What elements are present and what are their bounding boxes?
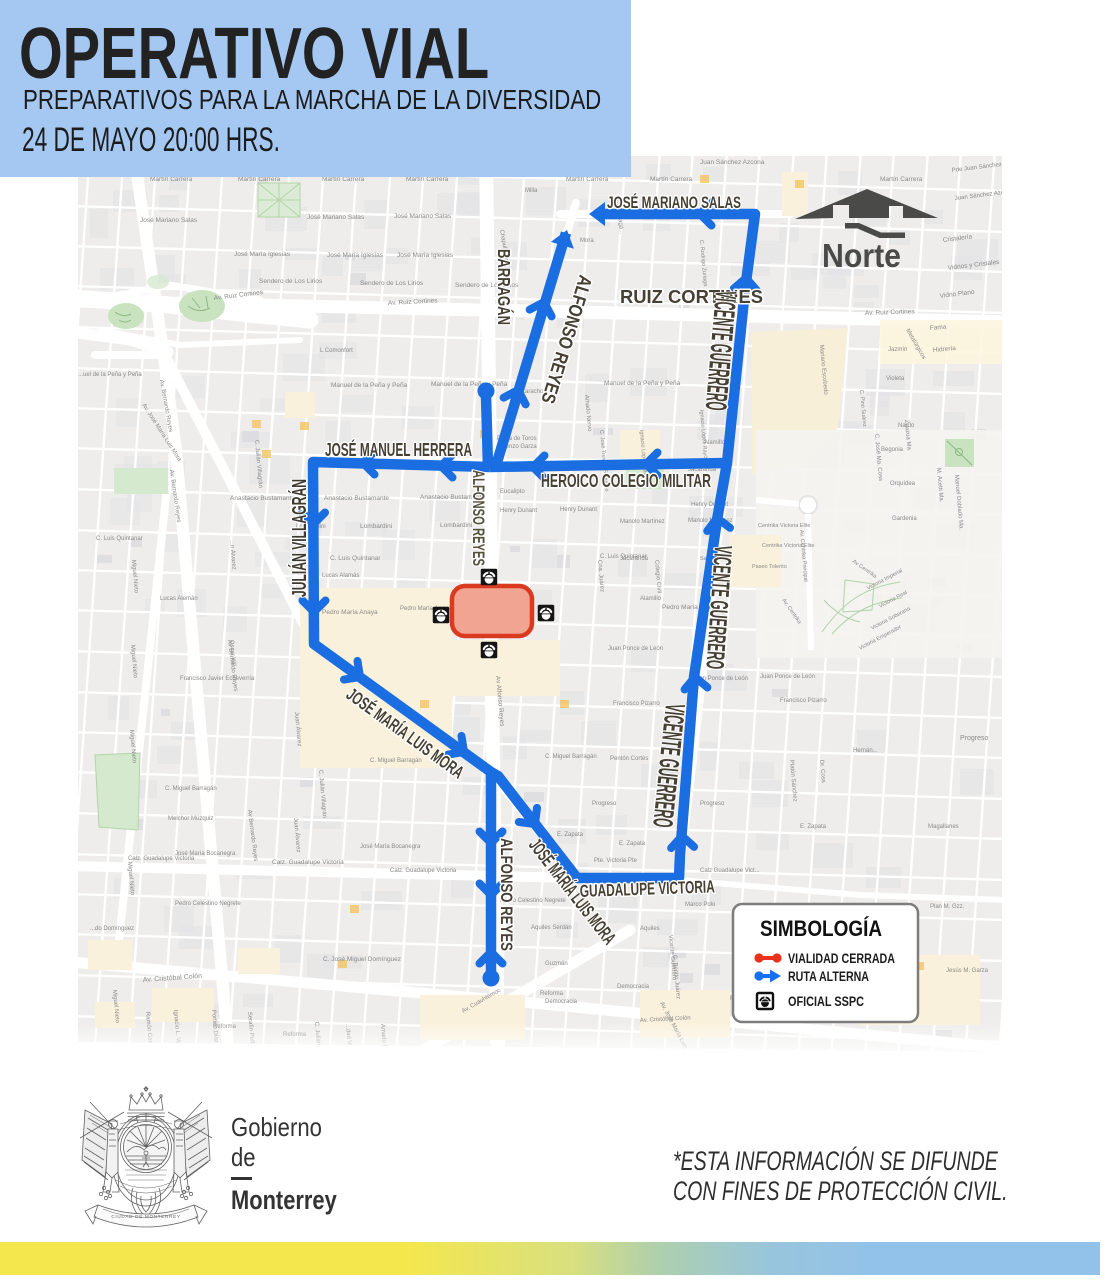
svg-text:C. Luis Quintanar: C. Luis Quintanar bbox=[330, 555, 381, 562]
svg-text:José María Bocanegra: José María Bocanegra bbox=[360, 844, 421, 850]
svg-text:Jazmín: Jazmín bbox=[888, 347, 907, 353]
svg-text:Orquídea: Orquídea bbox=[890, 481, 916, 487]
svg-text:Progreso: Progreso bbox=[592, 801, 617, 807]
svg-text:José Mariano Salas: José Mariano Salas bbox=[140, 217, 198, 224]
svg-text:Lombardini: Lombardini bbox=[360, 523, 392, 530]
svg-text:E. Zapata: E. Zapata bbox=[619, 841, 646, 847]
svg-text:Marco Polo: Marco Polo bbox=[685, 902, 716, 908]
svg-text:Martín Carrera: Martín Carrera bbox=[566, 176, 609, 183]
svg-text:Aquiles: Aquiles bbox=[640, 926, 660, 932]
svg-text:Plan M. Gzz.: Plan M. Gzz. bbox=[930, 904, 965, 910]
svg-text:Reforma: Reforma bbox=[540, 991, 564, 997]
svg-text:OFICIAL SSPC: OFICIAL SSPC bbox=[788, 994, 864, 1009]
svg-text:E. Zapata: E. Zapata bbox=[557, 832, 584, 838]
svg-text:Martín Carrera: Martín Carrera bbox=[150, 176, 193, 183]
svg-text:Juan Sánchez Azcona: Juan Sánchez Azcona bbox=[700, 159, 765, 166]
svg-text:Juan Ponce de León: Juan Ponce de León bbox=[760, 674, 815, 680]
svg-text:José María Iglesias: José María Iglesias bbox=[234, 251, 291, 258]
svg-text:Juan Ponce de León: Juan Ponce de León bbox=[608, 646, 663, 652]
svg-text:HEROICO COLEGIO MILITAR: HEROICO COLEGIO MILITAR bbox=[541, 471, 711, 491]
svg-text:Calz Guadalupe Vict...: Calz Guadalupe Vict... bbox=[700, 868, 760, 874]
svg-text:Anastacio Bustamante: Anastacio Bustamante bbox=[324, 495, 389, 502]
svg-text:JULIÁN VILLAGRÁN: JULIÁN VILLAGRÁN bbox=[288, 479, 311, 597]
svg-text:Progreso: Progreso bbox=[700, 801, 725, 807]
svg-text:Pedro Celestino Negrete: Pedro Celestino Negrete bbox=[175, 901, 241, 907]
svg-text:Paseo Tolento: Paseo Tolento bbox=[752, 564, 787, 570]
svg-text:C. Luis Quintanar: C. Luis Quintanar bbox=[96, 536, 143, 542]
svg-text:Nardo: Nardo bbox=[898, 423, 915, 429]
svg-text:Manuel de la Peña y Peña: Manuel de la Peña y Peña bbox=[331, 382, 408, 389]
svg-text:José Mariano Salas: José Mariano Salas bbox=[307, 214, 365, 221]
svg-text:RUTA ALTERNA: RUTA ALTERNA bbox=[788, 969, 869, 984]
svg-text:Francisco Javier Echeverría: Francisco Javier Echeverría bbox=[180, 676, 255, 682]
svg-text:Martín Carrera: Martín Carrera bbox=[238, 176, 281, 183]
svg-text:Centrika Victoria Elite: Centrika Victoria Elite bbox=[758, 523, 810, 529]
svg-text:Sendero de Los Lirios: Sendero de Los Lirios bbox=[360, 280, 424, 287]
svg-text:Fama: Fama bbox=[930, 324, 948, 332]
svg-text:Mora: Mora bbox=[580, 238, 594, 244]
svg-text:JOSÉ MARIANO SALAS: JOSÉ MARIANO SALAS bbox=[607, 193, 741, 212]
svg-text:Aquiles Serdán: Aquiles Serdán bbox=[531, 925, 572, 931]
svg-text:Jacarandá: Jacarandá bbox=[620, 556, 649, 562]
svg-text:Pedro María Anaya: Pedro María Anaya bbox=[322, 609, 378, 616]
svg-text:ALFONSO REYES: ALFONSO REYES bbox=[497, 838, 516, 951]
svg-text:L Comonfort: L Comonfort bbox=[320, 348, 353, 354]
svg-text:José María Iglesias: José María Iglesias bbox=[397, 252, 454, 259]
svg-text:Anastacio Bustamante: Anastacio Bustamante bbox=[230, 495, 295, 502]
svg-text:Centrika Victoria Elite: Centrika Victoria Elite bbox=[762, 543, 814, 549]
svg-text:Henry Dunant: Henry Dunant bbox=[560, 507, 597, 513]
svg-text:Begonia: Begonia bbox=[881, 447, 904, 453]
svg-text:Jesús M. Garza: Jesús M. Garza bbox=[946, 968, 989, 974]
svg-text:Martín Carrera: Martín Carrera bbox=[880, 176, 923, 183]
svg-text:Martín Carrera: Martín Carrera bbox=[650, 176, 693, 183]
svg-text:Hernán...: Hernán... bbox=[853, 748, 878, 754]
svg-text:Francisco Pizarro: Francisco Pizarro bbox=[780, 698, 827, 704]
svg-text:C. Miguel Barragán: C. Miguel Barragán bbox=[370, 758, 422, 764]
svg-text:Alamillo: Alamillo bbox=[640, 596, 662, 602]
svg-text:JOSÉ MANUEL HERRERA: JOSÉ MANUEL HERRERA bbox=[325, 439, 472, 460]
svg-text:Magallanes: Magallanes bbox=[928, 824, 959, 830]
svg-text:José Mariano Salas: José Mariano Salas bbox=[394, 213, 452, 220]
svg-text:Guzmán: Guzmán bbox=[545, 961, 568, 967]
svg-text:Manuel de la Peña y Peña: Manuel de la Peña y Peña bbox=[604, 380, 681, 387]
svg-text:José María Iglesias: José María Iglesias bbox=[327, 252, 384, 259]
svg-text:Norte: Norte bbox=[822, 237, 901, 274]
svg-text:Eucalipto: Eucalipto bbox=[500, 489, 525, 495]
svg-text:Progreso: Progreso bbox=[960, 735, 989, 742]
svg-text:CIUDAD DE MONTERREY: CIUDAD DE MONTERREY bbox=[111, 1214, 180, 1219]
svg-text:Manolo Martínez: Manolo Martínez bbox=[620, 519, 665, 525]
svg-text:Calz. Guadalupe Victoria: Calz. Guadalupe Victoria bbox=[390, 868, 457, 874]
svg-text:Lucas Alamás: Lucas Alamás bbox=[322, 573, 359, 579]
svg-text:Calz. Guadalupe Victoria: Calz. Guadalupe Victoria bbox=[128, 856, 195, 862]
svg-text:E. Zapata: E. Zapata bbox=[800, 824, 827, 830]
svg-text:C. José Miguel Domínguez: C. José Miguel Domínguez bbox=[323, 956, 401, 963]
svg-text:Democracia: Democracia bbox=[617, 984, 650, 990]
svg-text:Martín Carrera: Martín Carrera bbox=[406, 176, 449, 183]
svg-text:Sendero de Los Lirios: Sendero de Los Lirios bbox=[259, 278, 323, 285]
svg-text:Henry Dunant: Henry Dunant bbox=[500, 508, 537, 514]
svg-text:Gardenia: Gardenia bbox=[892, 516, 917, 522]
svg-text:Manuel de la Peña y Peña: Manuel de la Peña y Peña bbox=[431, 381, 508, 388]
svg-text:VIALIDAD CERRADA: VIALIDAD CERRADA bbox=[788, 951, 895, 966]
svg-text:...do Domínguez: ...do Domínguez bbox=[90, 926, 134, 932]
svg-text:Pte. Victoria Pte: Pte. Victoria Pte bbox=[594, 858, 638, 864]
svg-text:Violeta: Violeta bbox=[886, 376, 905, 382]
svg-text:C. Miguel Barragán: C. Miguel Barragán bbox=[165, 786, 217, 792]
svg-text:BARRAGÁN: BARRAGÁN bbox=[494, 249, 515, 325]
svg-text:ALFONSO REYES: ALFONSO REYES bbox=[469, 470, 488, 566]
svg-text:Pentón Cortés: Pentón Cortés bbox=[610, 756, 648, 762]
svg-text:C. Miguel Barragán: C. Miguel Barragán bbox=[545, 754, 597, 760]
svg-text:SIMBOLOGÍA: SIMBOLOGÍA bbox=[760, 916, 882, 941]
svg-text:Martín Carrera: Martín Carrera bbox=[322, 176, 365, 183]
svg-text:...uel de la Peña y Peña: ...uel de la Peña y Peña bbox=[78, 372, 142, 378]
svg-text:Lombardini: Lombardini bbox=[440, 522, 472, 529]
svg-text:Calz. Guadalupe Victoria: Calz. Guadalupe Victoria bbox=[272, 859, 344, 866]
svg-text:Milla: Milla bbox=[525, 188, 538, 194]
svg-text:Melchor Múzquiz: Melchor Múzquiz bbox=[168, 816, 213, 822]
svg-text:Lucas Alemán: Lucas Alemán bbox=[160, 596, 198, 602]
svg-text:Francisco Pizarro: Francisco Pizarro bbox=[613, 701, 660, 707]
